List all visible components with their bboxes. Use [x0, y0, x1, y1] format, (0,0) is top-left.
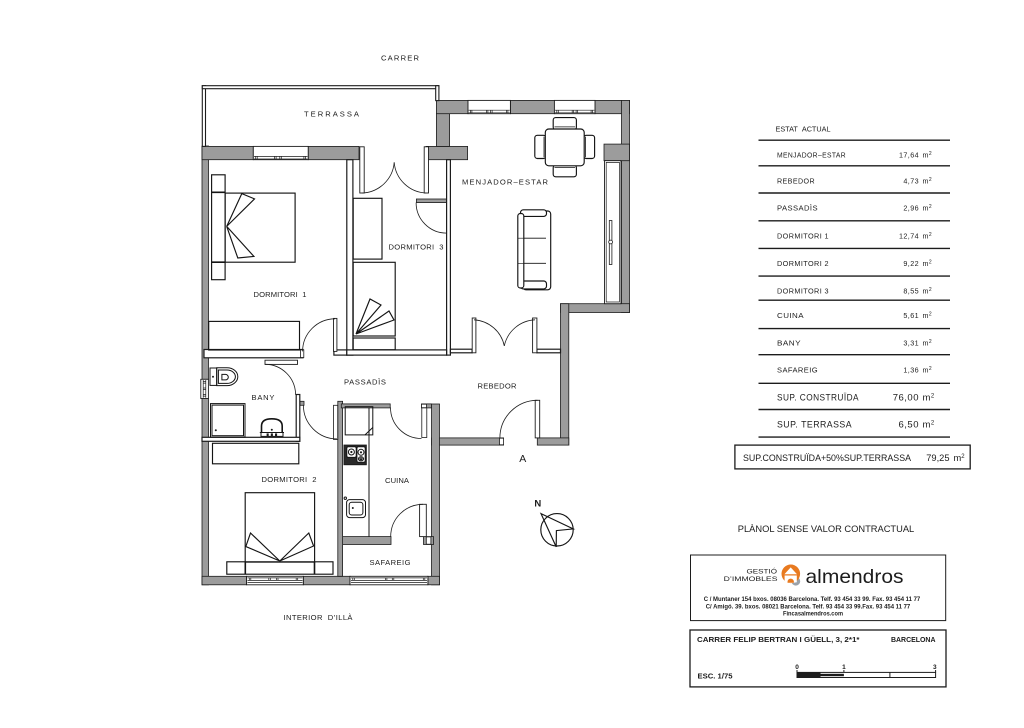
svg-text:79,25: 79,25	[926, 453, 949, 463]
svg-text:REBEDOR: REBEDOR	[777, 176, 815, 185]
svg-text:DORMITORI 3: DORMITORI 3	[777, 287, 829, 296]
svg-text:CUINA: CUINA	[385, 476, 410, 485]
svg-text:1: 1	[842, 664, 846, 671]
svg-text:N: N	[534, 499, 541, 510]
svg-text:TERRASSA: TERRASSA	[304, 110, 360, 119]
svg-text:6,50: 6,50	[899, 420, 920, 431]
svg-text:CARRER FELIP BERTRAN I GÜELL,: CARRER FELIP BERTRAN I GÜELL, 3, 2*1*	[697, 635, 860, 644]
svg-text:12,74: 12,74	[899, 231, 919, 240]
svg-text:DORMITORI 1: DORMITORI 1	[777, 231, 829, 240]
svg-text:BANY: BANY	[252, 393, 275, 402]
svg-text:PLÀNOL SENSE VALOR CONTRACTUAL: PLÀNOL SENSE VALOR CONTRACTUAL	[738, 524, 915, 535]
svg-text:Fincasalmendros.com: Fincasalmendros.com	[783, 610, 843, 617]
svg-text:SAFAREIG: SAFAREIG	[370, 558, 411, 567]
svg-text:9,22: 9,22	[903, 259, 919, 268]
svg-text:A: A	[519, 453, 526, 465]
svg-text:BANY: BANY	[777, 338, 801, 347]
svg-text:ESTAT ACTUAL: ESTAT ACTUAL	[776, 125, 831, 134]
svg-text:DORMITORI 2: DORMITORI 2	[777, 259, 829, 268]
svg-text:MENJADOR–ESTAR: MENJADOR–ESTAR	[777, 151, 846, 160]
svg-text:BARCELONA: BARCELONA	[891, 635, 936, 644]
svg-text:ESC. 1/75: ESC. 1/75	[698, 672, 733, 681]
svg-text:C / Muntaner 154 bxos. 08036 B: C / Muntaner 154 bxos. 08036 Barcelona. …	[704, 596, 921, 603]
svg-text:almendros: almendros	[806, 566, 904, 588]
svg-text:5,61: 5,61	[903, 311, 919, 320]
svg-text:2,96: 2,96	[903, 204, 919, 213]
svg-text:PASSADÌS: PASSADÌS	[344, 378, 386, 387]
svg-text:1,36: 1,36	[903, 366, 919, 375]
svg-text:SUP. TERRASSA: SUP. TERRASSA	[777, 420, 852, 431]
svg-text:0: 0	[795, 664, 799, 671]
svg-text:GESTIÓ: GESTIÓ	[747, 567, 778, 576]
svg-text:DORMITORI 3: DORMITORI 3	[389, 243, 444, 252]
svg-text:8,55: 8,55	[903, 287, 919, 296]
svg-text:3: 3	[933, 664, 937, 671]
svg-text:D’IMMOBLES: D’IMMOBLES	[724, 576, 778, 583]
svg-text:INTERIOR D’ILLÀ: INTERIOR D’ILLÀ	[284, 613, 354, 622]
svg-text:SUP. CONSTRUÏDA: SUP. CONSTRUÏDA	[777, 393, 859, 404]
svg-text:DORMITORI 1: DORMITORI 1	[254, 290, 307, 299]
svg-text:MENJADOR–ESTAR: MENJADOR–ESTAR	[462, 178, 549, 187]
svg-text:SUP.CONSTRUÏDA+50%SUP.TERRASSA: SUP.CONSTRUÏDA+50%SUP.TERRASSA	[743, 453, 912, 463]
svg-text:CARRER: CARRER	[381, 54, 420, 63]
svg-text:4,73: 4,73	[903, 176, 919, 185]
svg-text:PASSADÌS: PASSADÌS	[777, 204, 818, 213]
svg-text:17,64: 17,64	[899, 151, 919, 160]
svg-text:CUINA: CUINA	[777, 311, 804, 320]
svg-text:REBEDOR: REBEDOR	[478, 382, 518, 391]
svg-text:76,00: 76,00	[893, 393, 919, 404]
svg-text:3,31: 3,31	[903, 338, 919, 347]
svg-text:SAFAREIG: SAFAREIG	[777, 366, 818, 375]
svg-text:DORMITORI 2: DORMITORI 2	[262, 475, 317, 484]
